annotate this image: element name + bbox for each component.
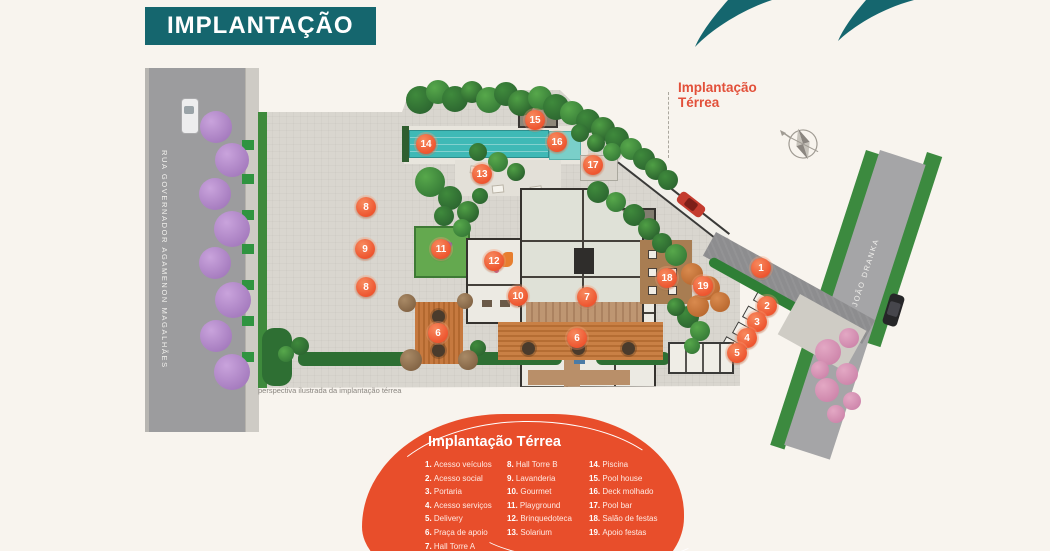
plan-marker-1: 1 <box>751 258 771 278</box>
tree <box>199 178 231 210</box>
tree <box>200 320 232 352</box>
plan-marker-6: 6 <box>567 328 587 348</box>
tree <box>815 378 839 402</box>
tree <box>398 294 416 312</box>
tree <box>200 111 232 143</box>
tree <box>665 244 687 266</box>
tree <box>839 328 859 348</box>
tree <box>684 338 700 354</box>
tree <box>278 346 294 362</box>
plan-caption: perspectiva ilustrada da implantação tér… <box>258 386 401 395</box>
legend-accent-arc-bottom <box>470 500 702 551</box>
tree <box>710 292 730 312</box>
brand-swoosh-icons <box>0 0 1050 60</box>
plan-marker-9: 9 <box>355 239 375 259</box>
tree <box>457 293 473 309</box>
plan-marker-11: 11 <box>431 239 451 259</box>
plan-marker-13: 13 <box>472 164 492 184</box>
plan-marker-14: 14 <box>416 134 436 154</box>
plan-marker-17: 17 <box>583 155 603 175</box>
street-verge-green <box>242 316 254 326</box>
tree <box>667 298 685 316</box>
tree <box>199 247 231 279</box>
plan-area-label: Implantação Térrea <box>678 80 757 110</box>
tree <box>458 350 478 370</box>
tree <box>507 163 525 181</box>
tree <box>687 295 709 317</box>
plan-marker-7: 7 <box>577 287 597 307</box>
tree <box>453 219 471 237</box>
legend-item-7: 7. Hall Torre A <box>425 540 492 551</box>
compass-icon <box>779 120 827 168</box>
tree <box>658 170 678 190</box>
tree <box>400 349 422 371</box>
tree <box>811 361 829 379</box>
plan-marker-12: 12 <box>484 251 504 271</box>
tree <box>434 206 454 226</box>
plan-marker-16: 16 <box>547 132 567 152</box>
plan-marker-15: 15 <box>525 110 545 130</box>
torre-b-entry-deck <box>528 370 630 385</box>
tree <box>215 282 251 318</box>
street-verge-green <box>242 244 254 254</box>
tree <box>587 134 605 152</box>
plan-marker-8: 8 <box>356 197 376 217</box>
plan-marker-8: 8 <box>356 277 376 297</box>
label-leader-line <box>668 92 669 158</box>
plan-marker-6: 6 <box>428 323 448 343</box>
tree <box>215 143 249 177</box>
elevator-core <box>574 248 594 274</box>
street-name-left: RUA GOVERNADOR AGAMENON MAGALHÃES <box>160 150 169 369</box>
white-car <box>181 98 199 134</box>
tree <box>603 143 621 161</box>
plan-marker-19: 19 <box>693 276 713 296</box>
tree <box>827 405 845 423</box>
site-plan-page: IMPLANTAÇÃO RUA GOVERNADOR AGAMENON MAGA… <box>0 0 1050 551</box>
ivy-wall <box>402 126 409 162</box>
tree <box>571 124 589 142</box>
tree <box>214 211 250 247</box>
tree <box>469 143 487 161</box>
lounger <box>492 184 505 193</box>
plan-marker-5: 5 <box>727 343 747 363</box>
street-verge-green <box>242 174 254 184</box>
tree <box>472 188 488 204</box>
plan-marker-10: 10 <box>508 286 528 306</box>
tree <box>214 354 250 390</box>
service-bays <box>668 342 734 374</box>
tree <box>836 363 858 385</box>
plan-marker-18: 18 <box>657 268 677 288</box>
road-left-edge <box>145 68 149 432</box>
tree <box>843 392 861 410</box>
tree <box>606 192 626 212</box>
